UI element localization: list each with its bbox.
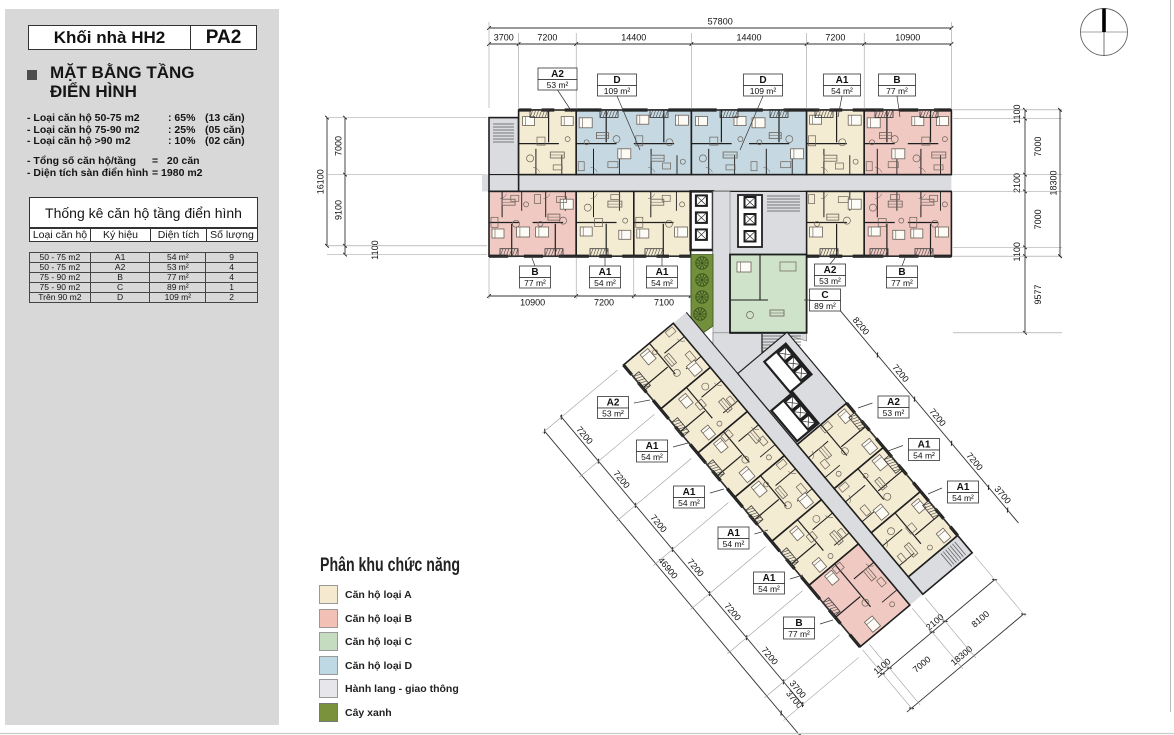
- svg-text:A1: A1: [836, 75, 849, 86]
- svg-text:3700: 3700: [494, 33, 514, 43]
- svg-text:7200: 7200: [685, 557, 706, 579]
- svg-text:10900: 10900: [520, 298, 545, 308]
- svg-text:A1: A1: [727, 528, 740, 539]
- svg-text:89 m²: 89 m²: [814, 301, 836, 311]
- svg-text:14400: 14400: [621, 33, 646, 43]
- svg-text:53 m²: 53 m²: [883, 408, 905, 418]
- svg-text:77 m²: 77 m²: [524, 278, 546, 288]
- svg-text:7200: 7200: [825, 33, 845, 43]
- svg-text:B: B: [795, 618, 802, 629]
- svg-text:2100: 2100: [1012, 173, 1022, 193]
- svg-text:7200: 7200: [927, 406, 948, 428]
- svg-text:18300: 18300: [1049, 170, 1059, 195]
- svg-text:14400: 14400: [736, 33, 761, 43]
- svg-text:9577: 9577: [1033, 284, 1043, 304]
- svg-text:54 m²: 54 m²: [831, 86, 853, 96]
- svg-text:7200: 7200: [890, 362, 911, 384]
- svg-text:A2: A2: [887, 397, 900, 408]
- svg-text:7200: 7200: [648, 513, 669, 535]
- svg-text:8100: 8100: [969, 609, 991, 630]
- svg-text:77 m²: 77 m²: [886, 86, 908, 96]
- svg-text:7200: 7200: [759, 645, 780, 667]
- svg-text:A2: A2: [607, 398, 620, 409]
- svg-text:54 m²: 54 m²: [594, 278, 616, 288]
- svg-text:7200: 7200: [594, 298, 614, 308]
- svg-text:54 m²: 54 m²: [641, 452, 663, 462]
- svg-text:16100: 16100: [316, 169, 326, 194]
- svg-text:A1: A1: [918, 440, 931, 451]
- svg-text:54 m²: 54 m²: [723, 539, 745, 549]
- svg-text:7100: 7100: [654, 298, 674, 308]
- svg-text:7000: 7000: [1033, 209, 1043, 229]
- svg-text:7000: 7000: [334, 136, 344, 156]
- svg-text:A1: A1: [683, 487, 696, 498]
- svg-text:10900: 10900: [895, 33, 920, 43]
- svg-text:7200: 7200: [537, 33, 557, 43]
- svg-text:53 m²: 53 m²: [547, 80, 569, 90]
- svg-text:7200: 7200: [574, 424, 595, 446]
- svg-text:A1: A1: [656, 267, 669, 278]
- svg-text:B: B: [531, 267, 538, 278]
- svg-text:7000: 7000: [911, 654, 933, 675]
- svg-text:A1: A1: [646, 441, 659, 452]
- svg-text:D: D: [759, 75, 766, 86]
- svg-text:18300: 18300: [949, 644, 975, 668]
- svg-text:7200: 7200: [722, 601, 743, 623]
- svg-text:1100: 1100: [370, 240, 380, 259]
- svg-text:7000: 7000: [1033, 137, 1043, 157]
- svg-text:9100: 9100: [334, 200, 344, 220]
- svg-text:54 m²: 54 m²: [678, 498, 700, 508]
- svg-text:B: B: [893, 75, 900, 86]
- svg-text:8200: 8200: [851, 315, 872, 337]
- svg-text:3700: 3700: [992, 484, 1013, 506]
- svg-text:109 m²: 109 m²: [750, 86, 777, 96]
- svg-text:C: C: [821, 290, 828, 301]
- svg-text:2100: 2100: [924, 612, 946, 633]
- svg-text:D: D: [613, 75, 620, 86]
- svg-text:109 m²: 109 m²: [604, 86, 631, 96]
- svg-text:77 m²: 77 m²: [788, 629, 810, 639]
- svg-text:A1: A1: [957, 482, 970, 493]
- svg-text:54 m²: 54 m²: [651, 278, 673, 288]
- svg-text:B: B: [898, 267, 905, 278]
- svg-text:77 m²: 77 m²: [891, 278, 913, 288]
- svg-text:1100: 1100: [1012, 242, 1022, 261]
- svg-text:53 m²: 53 m²: [819, 276, 841, 286]
- svg-text:A1: A1: [763, 573, 776, 584]
- svg-text:A2: A2: [551, 69, 564, 80]
- svg-text:A1: A1: [599, 267, 612, 278]
- svg-text:54 m²: 54 m²: [913, 451, 935, 461]
- svg-text:1100: 1100: [1012, 105, 1022, 124]
- svg-text:7200: 7200: [611, 469, 632, 491]
- svg-text:53 m²: 53 m²: [602, 409, 624, 419]
- svg-text:A2: A2: [824, 265, 837, 276]
- svg-text:7200: 7200: [964, 451, 985, 473]
- svg-text:54 m²: 54 m²: [952, 493, 974, 503]
- svg-text:57800: 57800: [708, 17, 733, 27]
- svg-text:54 m²: 54 m²: [758, 584, 780, 594]
